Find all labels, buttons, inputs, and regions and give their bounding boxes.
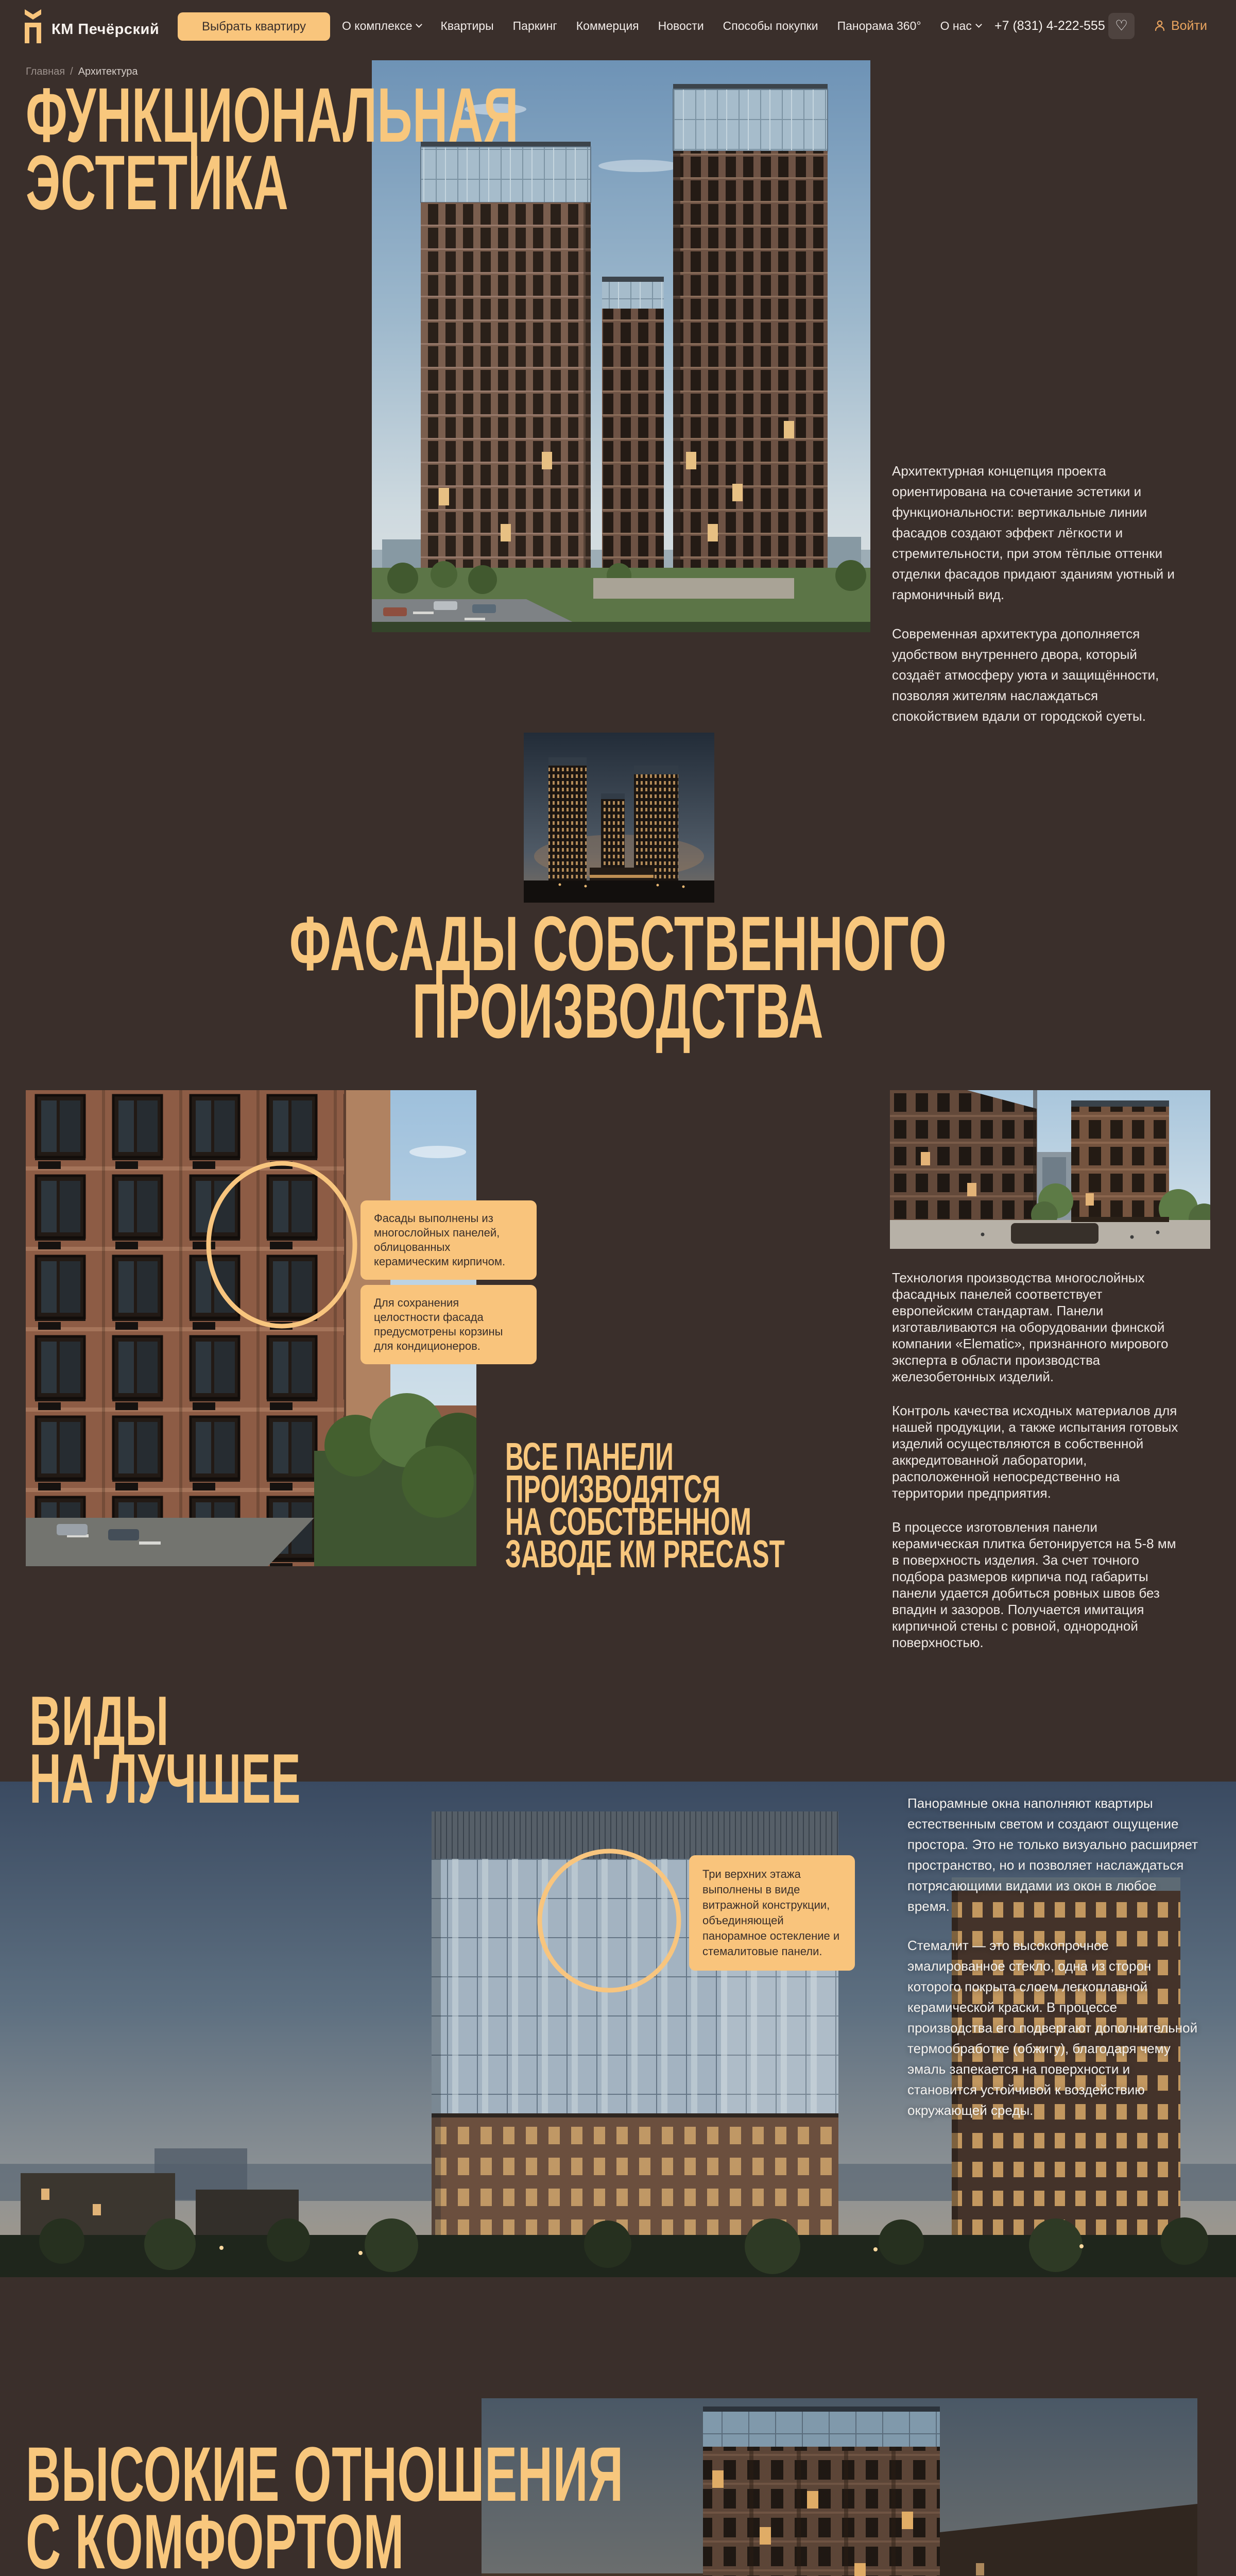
logo-mark-icon (24, 8, 42, 43)
paragraph: Контроль качества исходных материалов дл… (892, 1402, 1187, 1501)
architecture-page: КМ Печёрский Выбрать квартиру О комплекс… (0, 0, 1236, 2576)
paragraph: Панорамные окна наполняют квартиры естес… (907, 1793, 1199, 1917)
header: КМ Печёрский Выбрать квартиру О комплекс… (0, 0, 1236, 52)
section2-subheading: ВСЕ ПАНЕЛИ ПРОИЗВОДЯТСЯ НА СОБСТВЕННОМ З… (505, 1440, 929, 1570)
section2-text: Технология производства многослойных фас… (892, 1269, 1187, 1668)
logo[interactable]: КМ Печёрский (24, 8, 159, 43)
section1-text: Архитектурная концепция проекта ориентир… (892, 461, 1183, 745)
paragraph: Архитектурная концепция проекта ориентир… (892, 461, 1183, 605)
nav-item-apartments[interactable]: Квартиры (440, 19, 493, 33)
chevron-down-icon (416, 21, 423, 28)
heading-line: С КОМФОРТОМ (26, 2508, 404, 2575)
heading-line: НА ЛУЧШЕЕ (29, 1750, 301, 1807)
render-night-towers-photo (524, 733, 714, 903)
callout-glazing: Три верхних этажа выполнены в виде витра… (689, 1855, 855, 1971)
chevron-down-icon (975, 21, 982, 28)
courtyard-photo (890, 1090, 1210, 1249)
paragraph: Технология производства многослойных фас… (892, 1269, 1187, 1385)
person-icon (1154, 20, 1166, 32)
nav-item-complex[interactable]: О комплексе (342, 19, 421, 33)
heading-line: ПРОИЗВОДСТВА (413, 977, 824, 1045)
logo-title: КМ Печёрский (51, 21, 159, 38)
main-nav: О комплексе Квартиры Паркинг Коммерция Н… (342, 0, 981, 52)
heading-line: ЗАВОДЕ КМ PRECAST (505, 1538, 785, 1570)
nav-item-parking[interactable]: Паркинг (513, 19, 557, 33)
paragraph: Стемалит — это высокопрочное эмалированн… (907, 1935, 1199, 2121)
section3-title: ВИДЫ НА ЛУЧШЕЕ (29, 1692, 460, 1807)
paragraph: Современная архитектура дополняется удоб… (892, 623, 1183, 726)
heading-line: ЭСТЕТИКА (26, 149, 288, 216)
nav-item-panorama[interactable]: Панорама 360° (837, 19, 921, 33)
phone-link[interactable]: +7 (831) 4-222-555 (994, 0, 1105, 52)
nav-item-commerce[interactable]: Коммерция (576, 19, 639, 33)
paragraph: В процессе изготовления панели керамичес… (892, 1519, 1187, 1651)
section4-title: ВЫСОКИЕ ОТНОШЕНИЯ С КОМФОРТОМ (26, 2441, 975, 2575)
heart-icon: ♡ (1115, 17, 1128, 34)
login-button[interactable]: Войти (1154, 0, 1207, 52)
section2-title: ФАСАДЫ СОБСТВЕННОГО ПРОИЗВОДСТВА (0, 910, 1236, 1045)
choose-apartment-button[interactable]: Выбрать квартиру (178, 12, 330, 41)
nav-item-news[interactable]: Новости (658, 19, 704, 33)
section1-title: ФУНКЦИОНАЛЬНАЯ ЭСТЕТИКА (26, 81, 809, 216)
nav-item-about[interactable]: О нас (940, 19, 981, 33)
nav-item-purchase[interactable]: Способы покупки (723, 19, 818, 33)
callout-panels: Фасады выполнены из многослойных панелей… (360, 1200, 537, 1280)
callout-ac-baskets: Для сохранения целостности фасада предус… (360, 1285, 537, 1364)
section3-text: Панорамные окна наполняют квартиры естес… (907, 1793, 1199, 2139)
favorites-button[interactable]: ♡ (1108, 13, 1135, 39)
facade-callouts: Фасады выполнены из многослойных панелей… (360, 1200, 537, 1364)
